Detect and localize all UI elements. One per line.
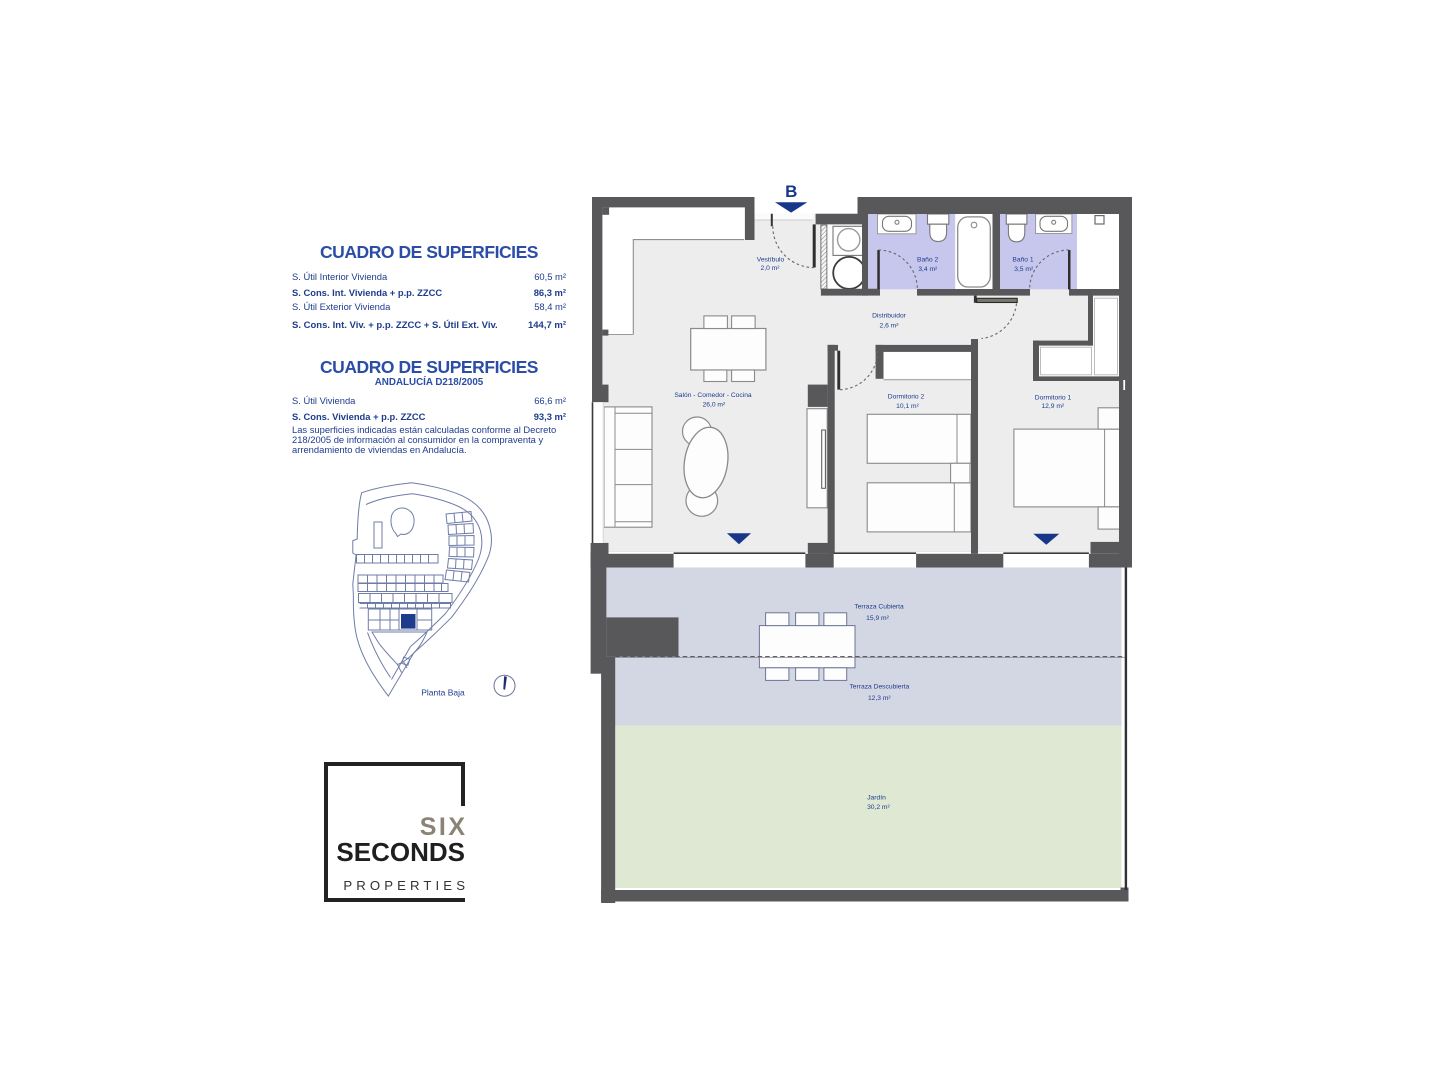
svg-text:Planta Baja: Planta Baja (421, 688, 465, 698)
svg-text:Salón - Comedor - Cocina: Salón - Comedor - Cocina (674, 392, 752, 399)
svg-text:12,3 m²: 12,3 m² (868, 695, 891, 702)
svg-text:2,0 m²: 2,0 m² (761, 265, 781, 272)
svg-text:Terraza Cubierta: Terraza Cubierta (854, 604, 904, 611)
svg-text:Dormitorio 1: Dormitorio 1 (1035, 394, 1072, 401)
svg-text:26,0 m²: 26,0 m² (703, 402, 726, 409)
svg-text:Vestíbulo: Vestíbulo (757, 257, 785, 264)
svg-text:10,1 m²: 10,1 m² (896, 403, 919, 410)
svg-text:3,4 m²: 3,4 m² (918, 266, 938, 273)
svg-text:Distribuidor: Distribuidor (872, 313, 907, 320)
svg-text:15,9 m²: 15,9 m² (866, 615, 889, 622)
svg-text:Jardín: Jardín (867, 795, 886, 802)
svg-text:Baño 2: Baño 2 (917, 257, 938, 264)
svg-text:Terraza Descubierta: Terraza Descubierta (849, 684, 909, 691)
svg-text:30,2 m²: 30,2 m² (867, 804, 890, 811)
svg-text:12,9 m²: 12,9 m² (1041, 403, 1064, 410)
svg-text:Baño 1: Baño 1 (1012, 257, 1033, 264)
svg-text:Dormitorio 2: Dormitorio 2 (888, 394, 925, 401)
svg-text:3,5 m²: 3,5 m² (1014, 266, 1034, 273)
svg-text:B: B (785, 182, 797, 201)
svg-text:2,6 m²: 2,6 m² (880, 323, 900, 330)
